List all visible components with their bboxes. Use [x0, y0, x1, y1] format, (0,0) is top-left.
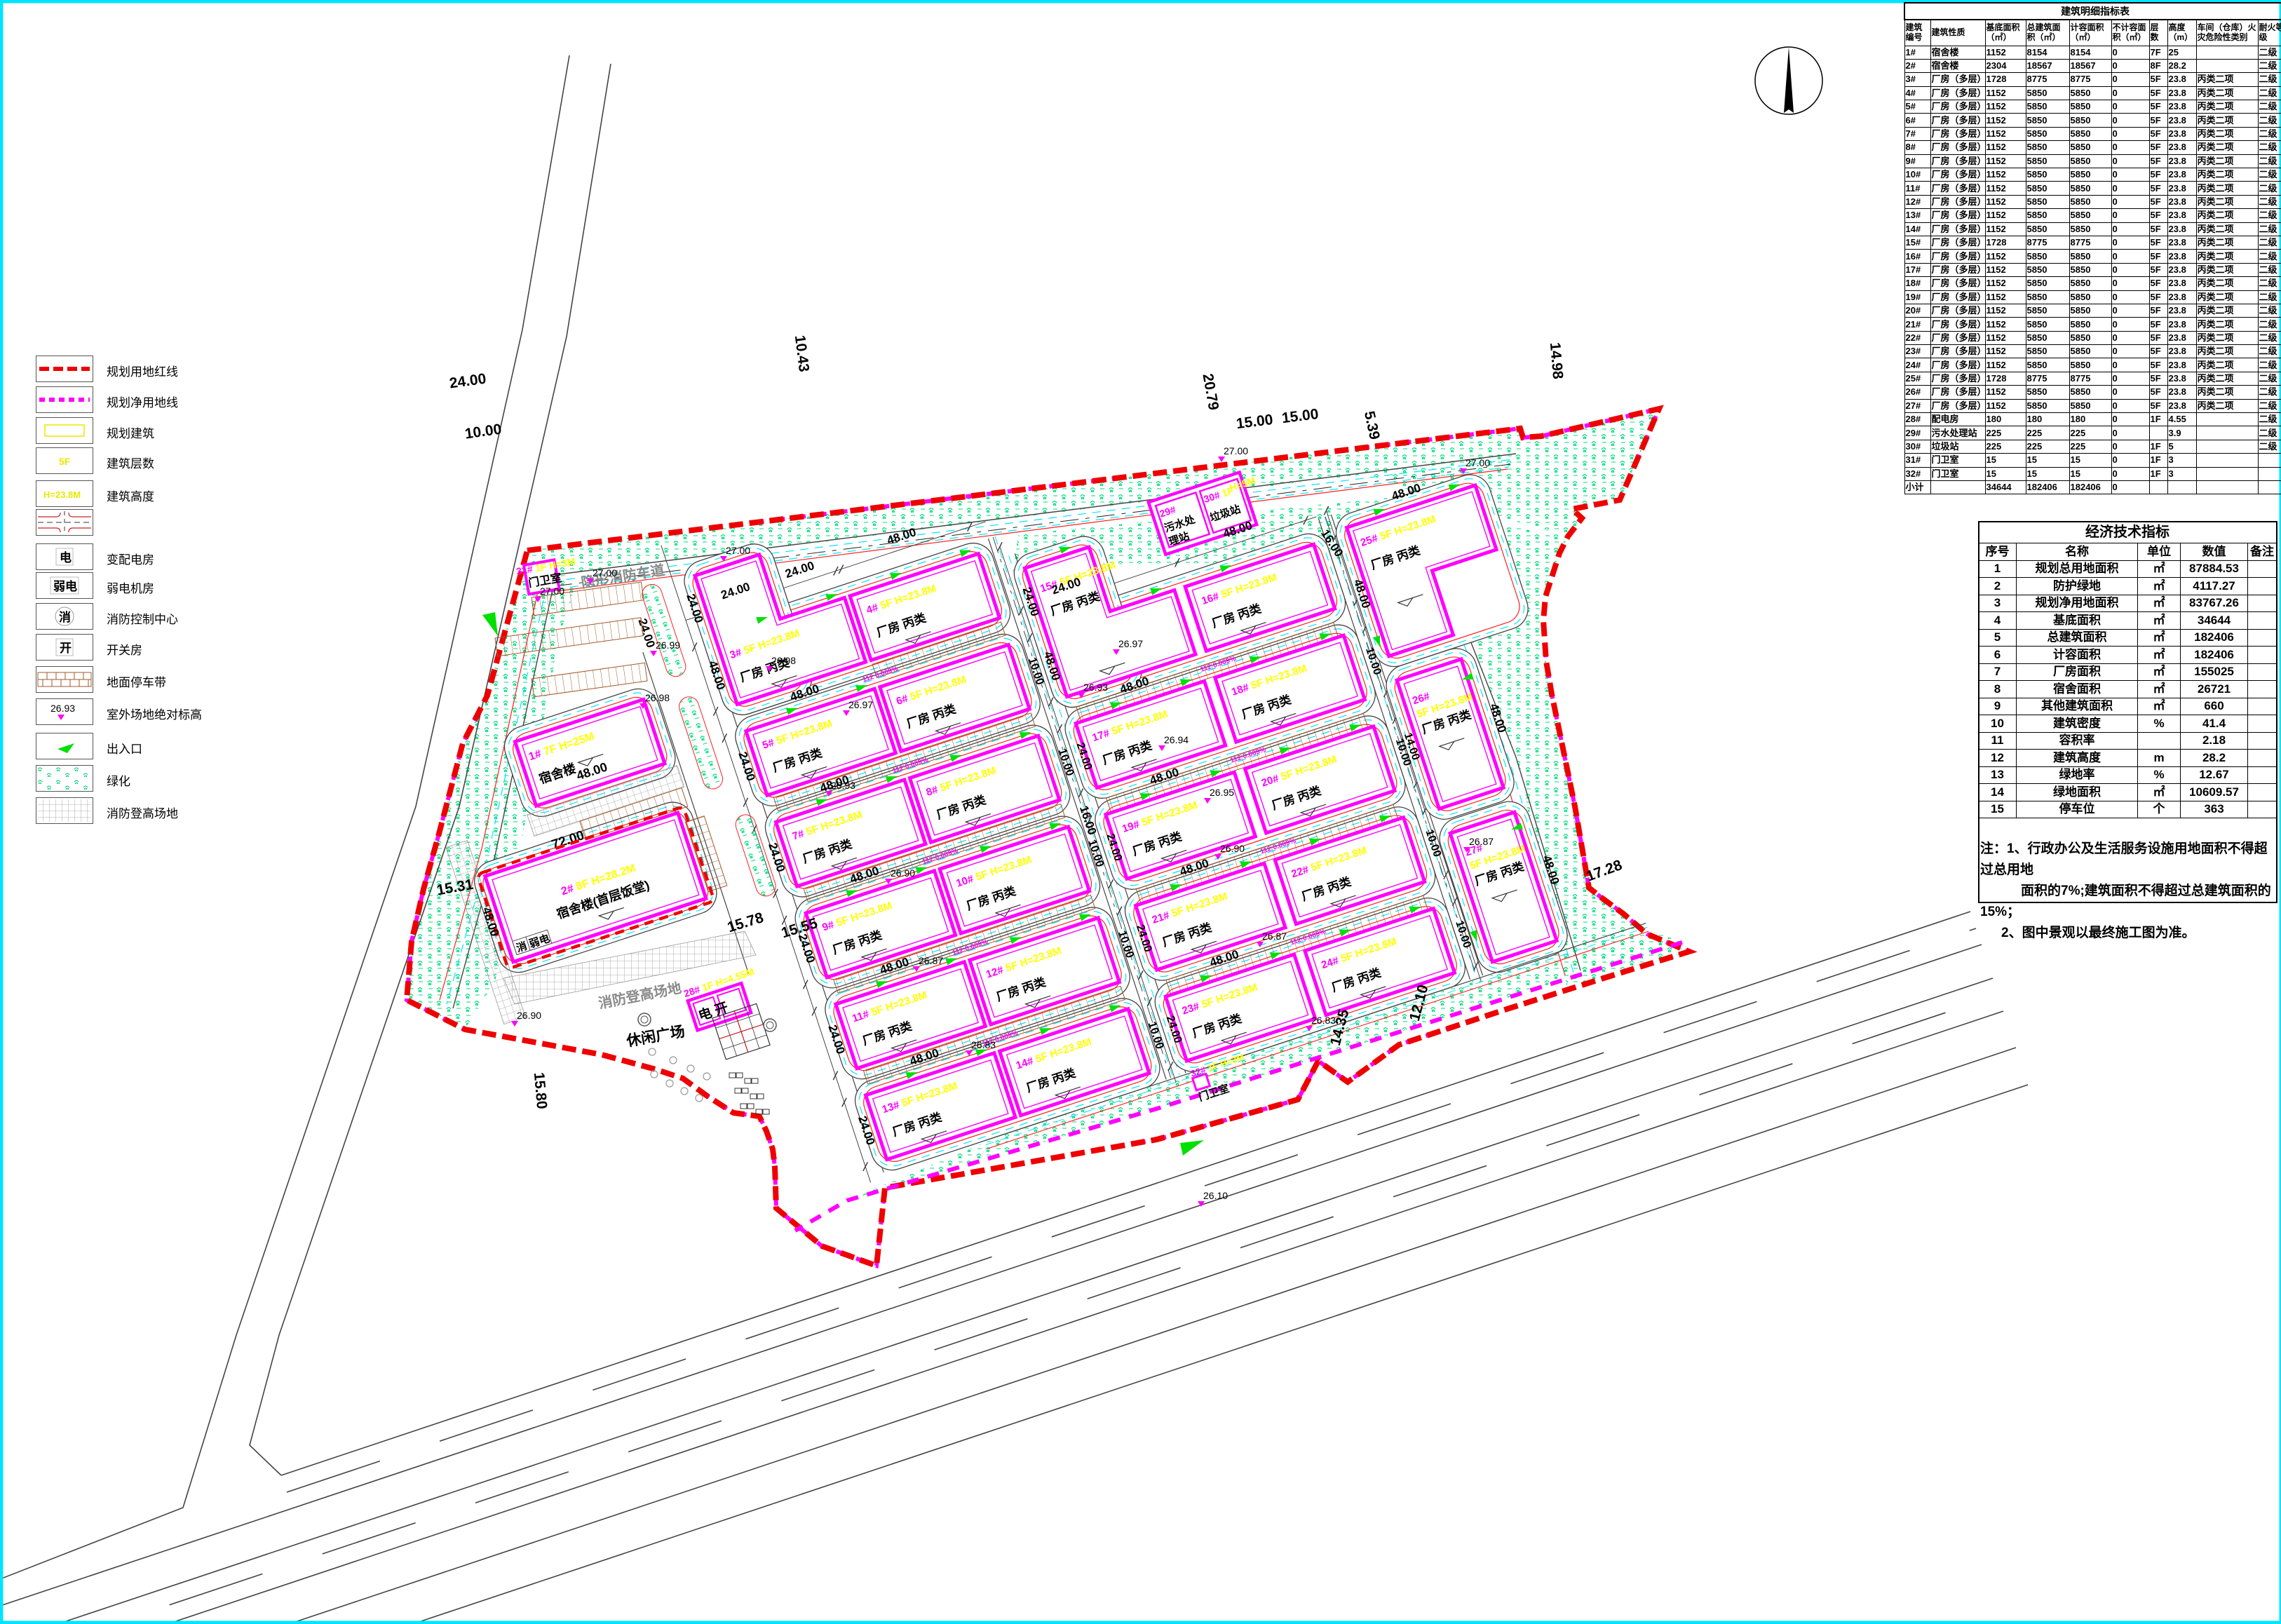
svg-text:26.10: 26.10 — [1203, 1190, 1228, 1201]
svg-text:15.00: 15.00 — [1236, 412, 1274, 432]
svg-text:26.98: 26.98 — [645, 692, 670, 703]
svg-text:26.97: 26.97 — [1118, 638, 1143, 649]
svg-text:24.00: 24.00 — [783, 559, 815, 581]
svg-text:27.00: 27.00 — [593, 567, 617, 578]
svg-text:27.00: 27.00 — [726, 545, 750, 556]
svg-text:消: 消 — [59, 610, 71, 624]
svg-text:26.90: 26.90 — [1220, 843, 1245, 854]
svg-text:26.90: 26.90 — [891, 867, 915, 879]
svg-text:弱电: 弱电 — [53, 579, 77, 593]
svg-text:电: 电 — [60, 550, 72, 564]
svg-text:26.87: 26.87 — [1469, 836, 1494, 847]
svg-text:26.94: 26.94 — [1164, 734, 1189, 745]
svg-text:17.28: 17.28 — [1584, 857, 1625, 885]
svg-text:15.80: 15.80 — [531, 1071, 550, 1109]
svg-text:10.00: 10.00 — [463, 421, 502, 442]
svg-text:26.87: 26.87 — [1262, 931, 1287, 942]
svg-text:27.00: 27.00 — [1224, 445, 1248, 456]
svg-text:26.99: 26.99 — [656, 640, 680, 651]
svg-text:5.39: 5.39 — [1361, 410, 1383, 441]
svg-text:26.93: 26.93 — [831, 780, 855, 791]
svg-text:15.78: 15.78 — [726, 909, 766, 935]
svg-text:15.00: 15.00 — [1281, 406, 1320, 426]
svg-text:休闲广场: 休闲广场 — [625, 1023, 686, 1050]
svg-text:26.97: 26.97 — [848, 699, 873, 710]
svg-text:开: 开 — [60, 642, 72, 655]
svg-text:26.98: 26.98 — [771, 655, 796, 666]
svg-text:H=23.8M: H=23.8M — [43, 489, 81, 500]
svg-text:20.79: 20.79 — [1200, 372, 1222, 412]
svg-text:26.93: 26.93 — [50, 703, 75, 714]
svg-text:26.90: 26.90 — [517, 1010, 541, 1021]
svg-text:24.00: 24.00 — [448, 371, 487, 392]
svg-text:10.43: 10.43 — [792, 334, 812, 373]
svg-text:26.87: 26.87 — [919, 955, 943, 966]
svg-text:26.95: 26.95 — [1210, 787, 1234, 798]
svg-text:14.98: 14.98 — [1547, 341, 1566, 380]
svg-text:26.93: 26.93 — [1083, 682, 1108, 693]
svg-text:26.83: 26.83 — [1311, 1015, 1336, 1026]
svg-text:27.00: 27.00 — [540, 586, 564, 597]
svg-text:5F: 5F — [59, 456, 71, 467]
svg-text:27.00: 27.00 — [1466, 457, 1490, 468]
svg-text:26.83: 26.83 — [971, 1039, 996, 1050]
